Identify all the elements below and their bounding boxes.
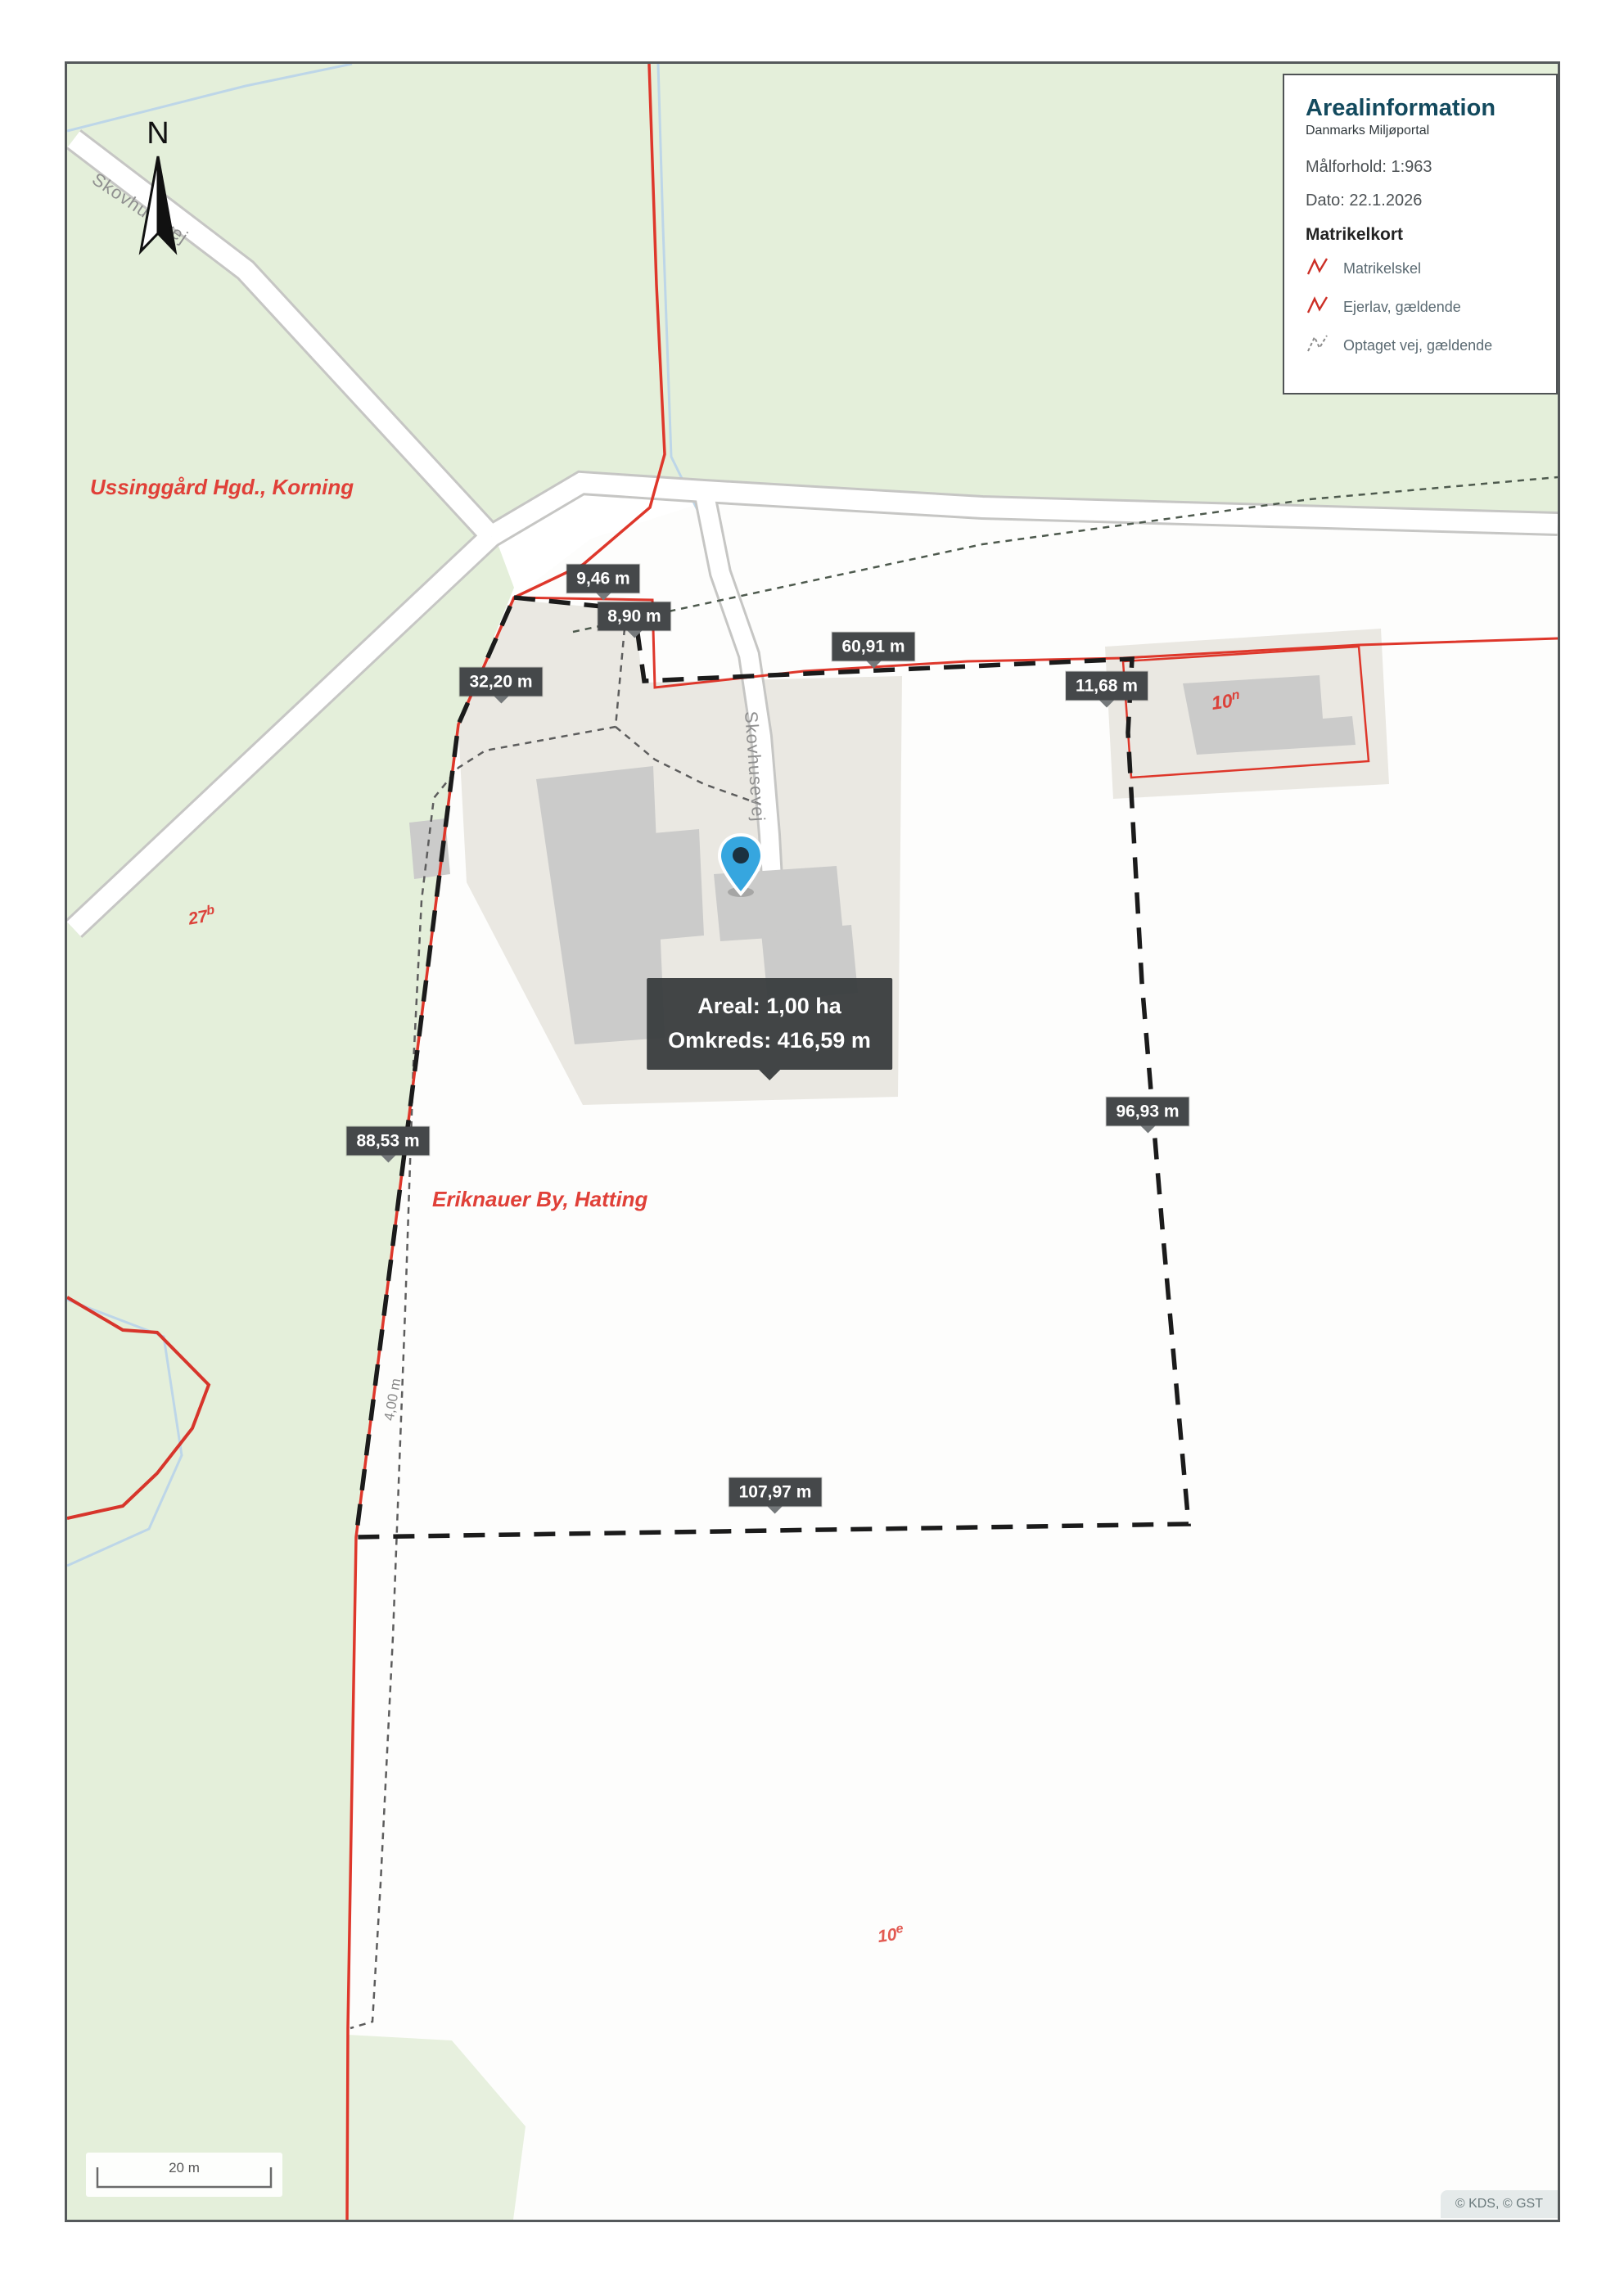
basemap-layers[interactable] (67, 64, 1558, 2220)
pin-icon (720, 835, 762, 894)
location-pin[interactable] (715, 832, 767, 903)
map-canvas[interactable]: Skovhusevej Skovhusevej Ussinggård Hgd.,… (67, 64, 1558, 2220)
pin-center-dot (733, 847, 749, 863)
